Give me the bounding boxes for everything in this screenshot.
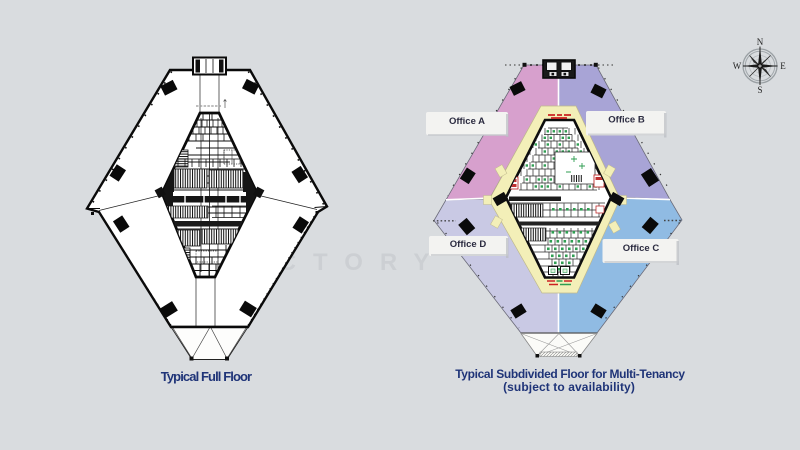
- svg-text:Office C: Office C: [623, 243, 660, 254]
- svg-text:S: S: [757, 85, 762, 95]
- svg-text:Office B: Office B: [608, 115, 645, 126]
- svg-text:Office D: Office D: [450, 239, 487, 250]
- svg-text:(subject to availability): (subject to availability): [503, 380, 635, 394]
- svg-text:W: W: [733, 61, 742, 71]
- svg-text:N: N: [757, 37, 764, 47]
- svg-text:Typical Full Floor: Typical Full Floor: [161, 369, 252, 384]
- svg-text:E: E: [780, 61, 786, 71]
- svg-text:Office A: Office A: [449, 116, 485, 127]
- svg-text:Typical Subdivided Floor for M: Typical Subdivided Floor for Multi-Tenan…: [455, 367, 685, 381]
